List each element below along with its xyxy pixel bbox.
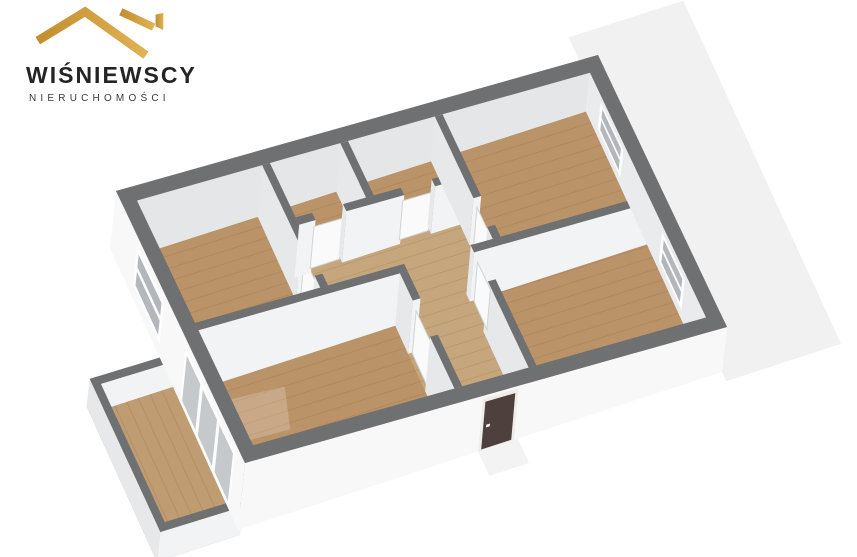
logo-title: WIŚNIEWSCY bbox=[26, 62, 246, 89]
chimney bbox=[156, 13, 164, 30]
brand-logo: WIŚNIEWSCY NIERUCHOMOŚCI bbox=[26, 4, 246, 104]
page: WIŚNIEWSCY NIERUCHOMOŚCI bbox=[0, 0, 857, 557]
roof-secondary bbox=[121, 12, 154, 27]
logo-house-roof-icon bbox=[32, 4, 172, 60]
logo-subtitle: NIERUCHOMOŚCI bbox=[29, 93, 246, 104]
